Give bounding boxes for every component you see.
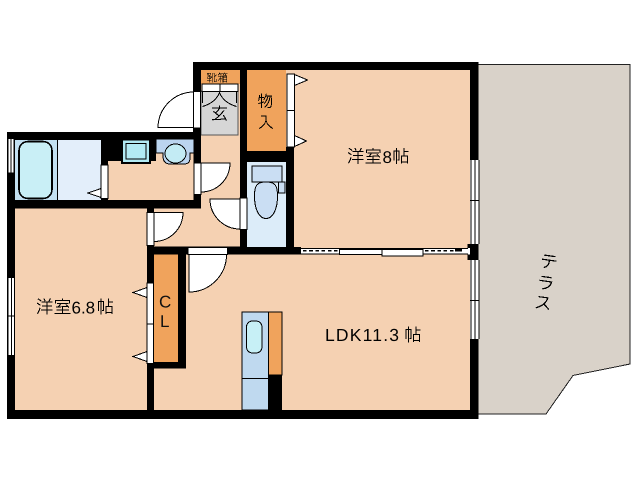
svg-text:C: C (159, 293, 171, 312)
svg-text:8: 8 (383, 148, 392, 167)
svg-text:L: L (160, 312, 169, 331)
svg-text:6.8: 6.8 (72, 299, 96, 318)
svg-text:LDK11.3: LDK11.3 (325, 325, 400, 345)
